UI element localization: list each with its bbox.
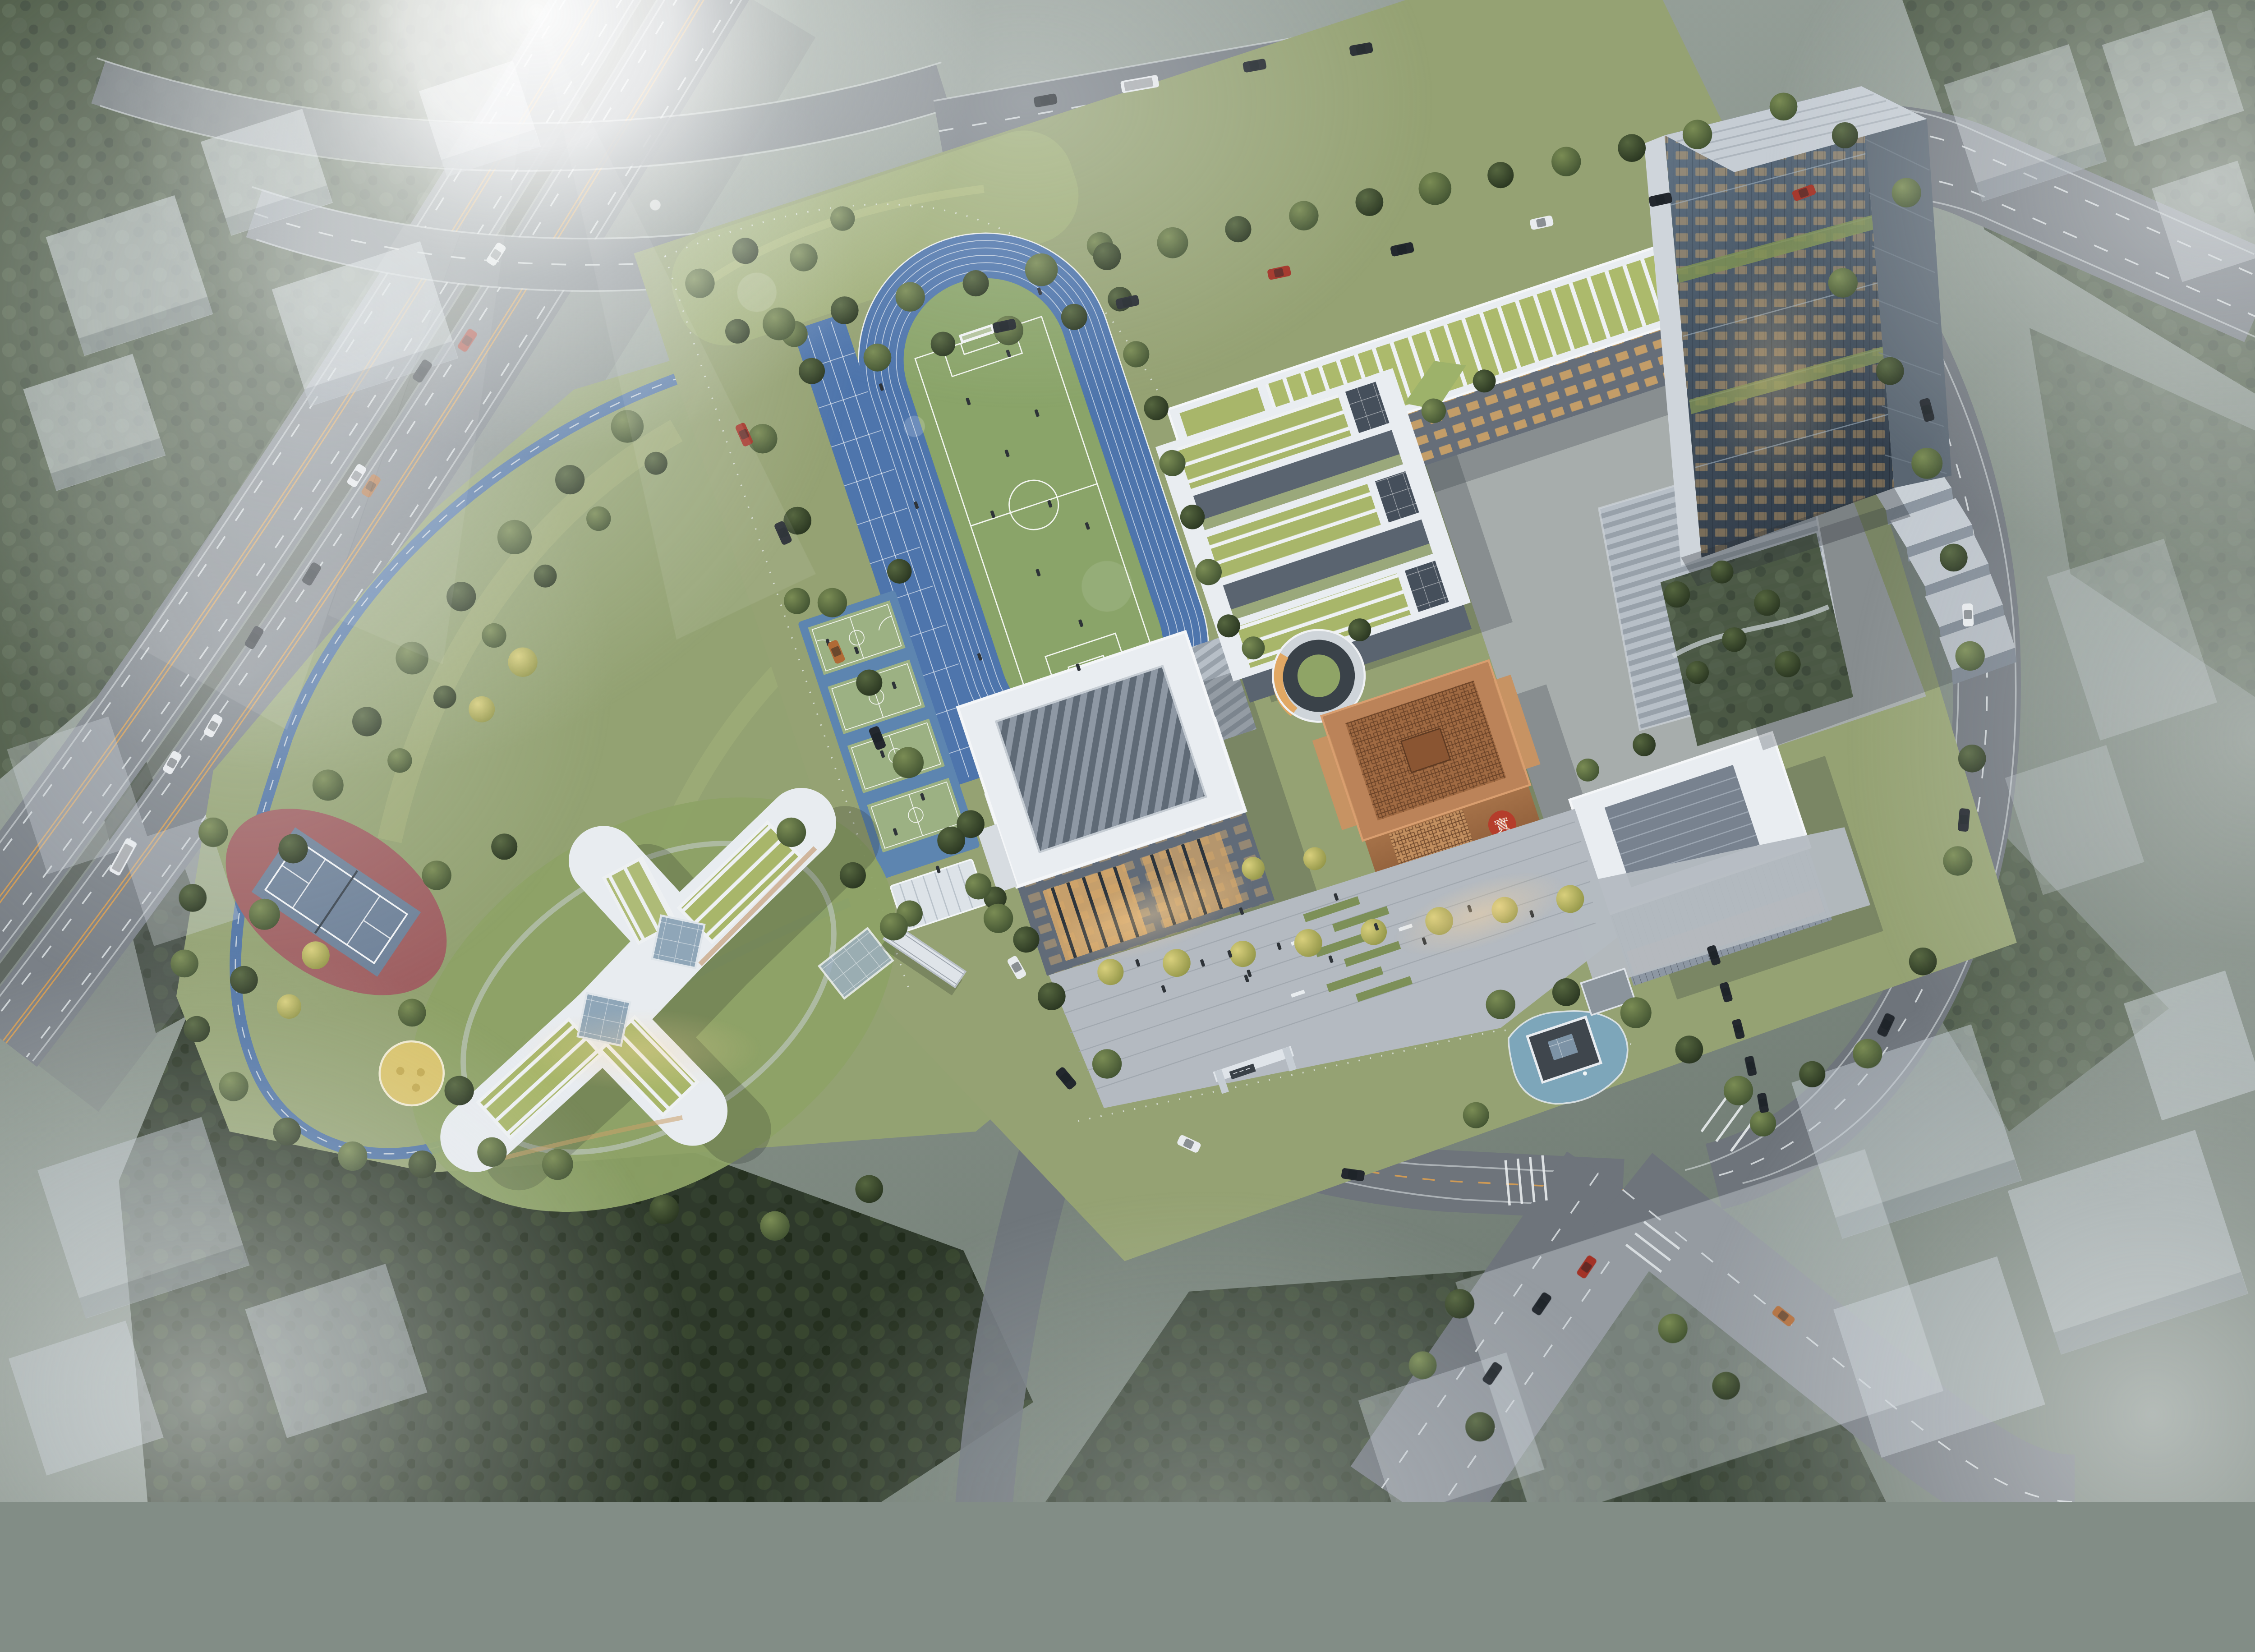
rendering-canvas: 實 温州市实验中学 [0, 0, 2255, 1502]
campus-aerial-scene: 實 温州市实验中学 [0, 0, 2255, 1502]
lens-flare [737, 273, 777, 312]
